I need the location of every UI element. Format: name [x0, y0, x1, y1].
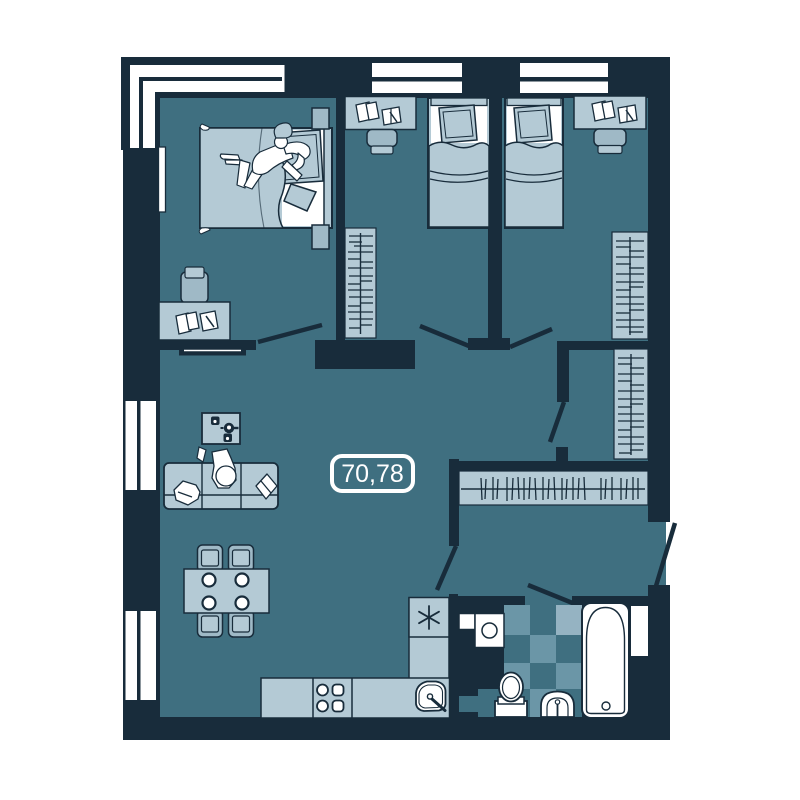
svg-text:70,78: 70,78	[341, 460, 404, 488]
